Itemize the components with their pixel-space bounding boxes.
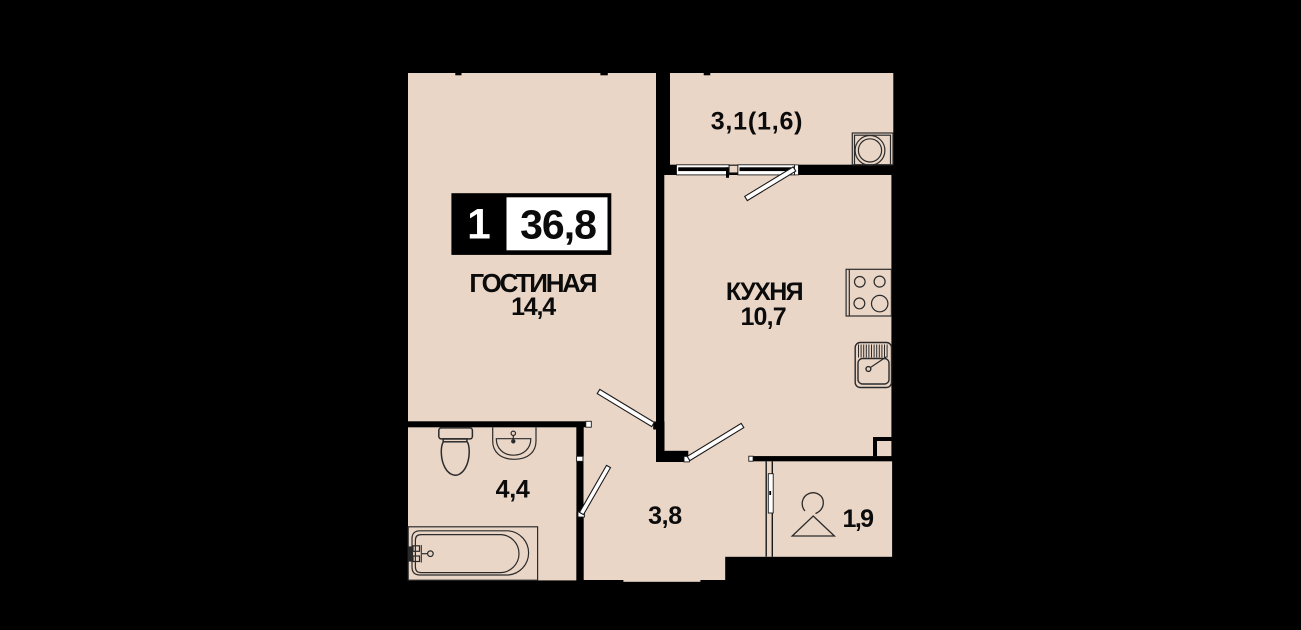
svg-text:4,4: 4,4 bbox=[496, 476, 530, 504]
svg-text:КУХНЯ: КУХНЯ bbox=[726, 278, 803, 306]
svg-text:1: 1 bbox=[467, 201, 491, 248]
svg-text:10,7: 10,7 bbox=[740, 303, 785, 331]
svg-text:36,8: 36,8 bbox=[520, 201, 596, 247]
svg-text:3,1(1,6): 3,1(1,6) bbox=[711, 108, 804, 136]
svg-text:3,8: 3,8 bbox=[648, 502, 682, 530]
svg-text:14,4: 14,4 bbox=[511, 293, 556, 321]
svg-text:1,9: 1,9 bbox=[843, 505, 874, 533]
